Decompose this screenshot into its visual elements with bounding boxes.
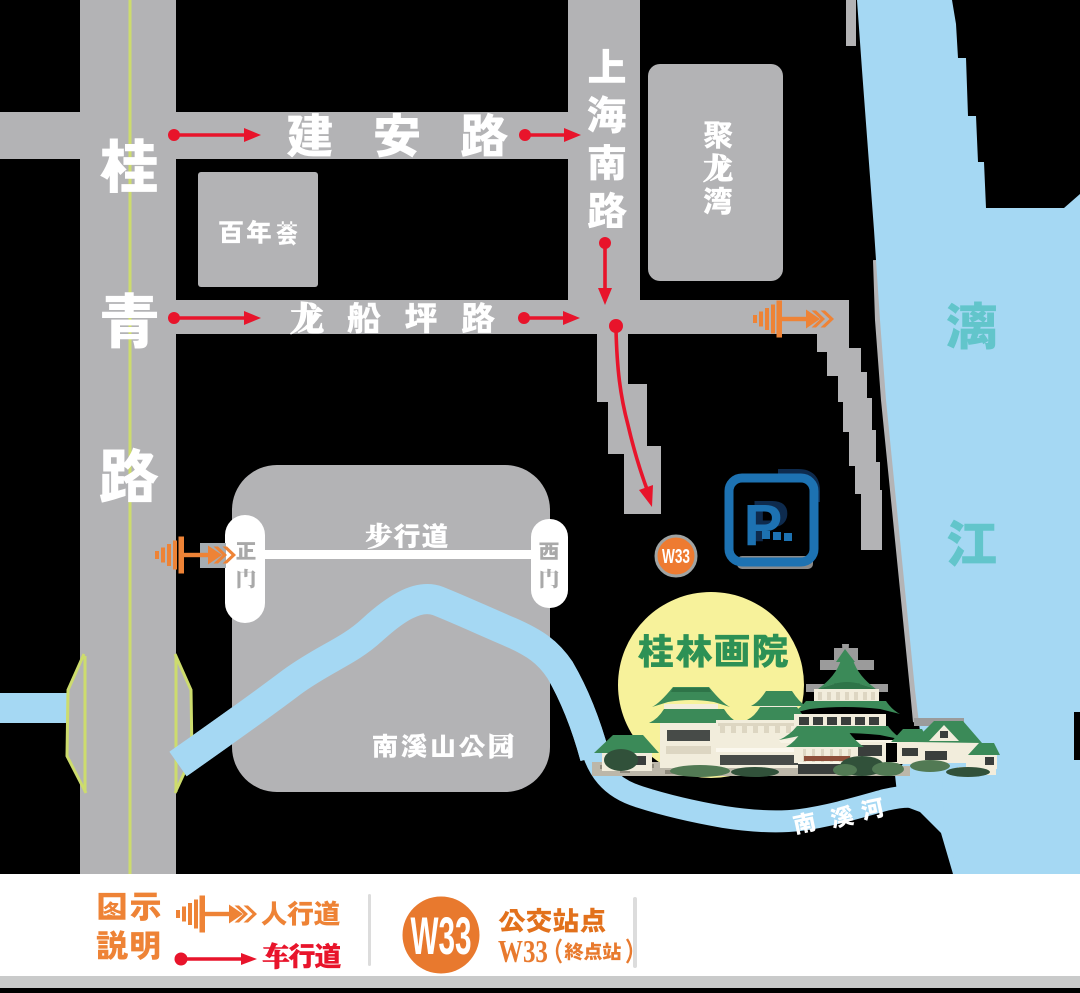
svg-text:W33: W33 xyxy=(662,545,690,567)
svg-text:W33: W33 xyxy=(498,934,548,970)
svg-text:P: P xyxy=(744,493,783,558)
svg-text:W33: W33 xyxy=(410,907,471,966)
